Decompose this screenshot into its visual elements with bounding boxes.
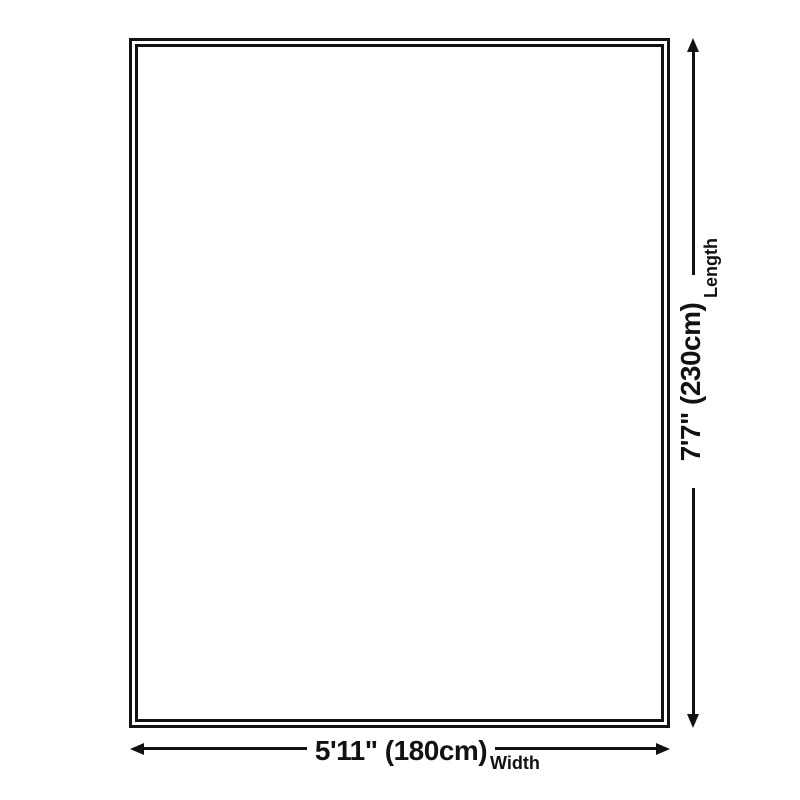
length-label: Length — [702, 238, 720, 298]
length-value: 7'7" (230cm) — [677, 303, 705, 462]
length-arrow-line-upper — [692, 50, 695, 275]
rug-inner-border — [135, 44, 664, 722]
dimension-diagram: 7'7" (230cm) Length 5'11" (180cm) Width — [0, 0, 800, 800]
width-arrow-line-left — [142, 747, 307, 750]
width-arrow-line-right — [495, 747, 658, 750]
width-label: Width — [490, 754, 540, 772]
rug-outline — [129, 38, 670, 728]
arrow-right-icon — [656, 743, 670, 755]
length-arrow-line-lower — [692, 488, 695, 716]
width-value: 5'11" (180cm) — [315, 737, 487, 765]
arrow-down-icon — [687, 714, 699, 728]
